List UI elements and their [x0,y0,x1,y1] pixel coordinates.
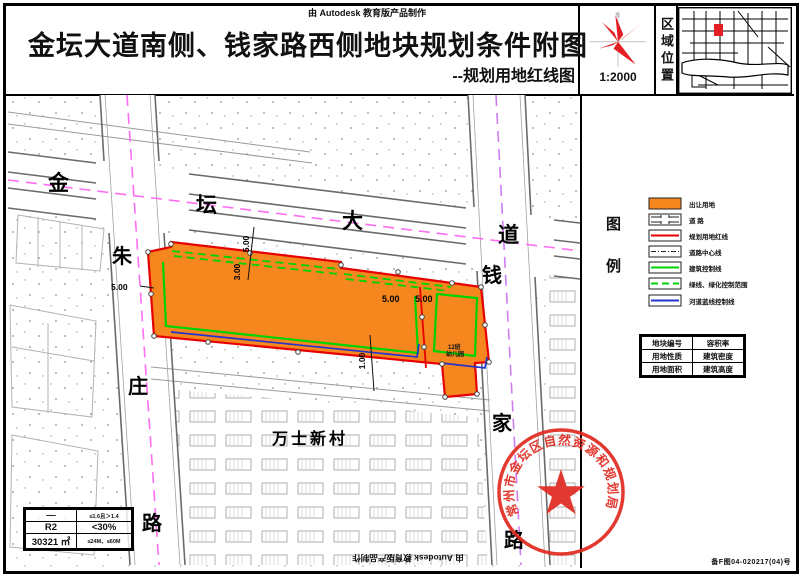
green-dash-swatch [648,277,682,290]
legend-label: 绿线、绿化控制范围 [689,279,748,289]
road-symbol-swatch [648,213,682,226]
param-cell: 建筑高度 [693,363,744,376]
road-char: 坛 [196,194,217,217]
legend-item-blue-line: 河道蓝线控制线 [648,294,735,307]
orange-fill-swatch [648,197,682,210]
legend-title-top: 图 [606,213,621,234]
made-by-text-bottom: 由 Autodesk 教育版产品制作 [333,552,483,564]
legend-label: 道 路 [689,215,704,225]
legend-label: 建筑控制线 [689,263,722,273]
page-subtitle: --规划用地红线图 [250,62,575,86]
village-label: 万士新村 [271,429,348,448]
param-table: 地块编号 容积率 用地性质 建筑密度 用地面积 建筑高度 [639,334,746,378]
dim-left: 5.00 [111,282,128,292]
legend-item-centerline: 道路中心线 [648,245,722,258]
value-cell: — [26,510,77,522]
road-char: 金 [47,171,70,195]
legend-item-red-line: 规划用地红线 [648,229,728,242]
legend-item-parcel: 出让用地 [648,197,715,210]
site-note-line1: 12班 [448,343,461,351]
param-cell: 用地面积 [642,363,693,376]
road-char: 道 [498,223,519,247]
dim-top-b: 3.00 [232,263,242,280]
plan-sheet: { "header": { "made_by": "由 Autodesk 教育版… [0,0,800,575]
road-char: 朱 [112,245,133,268]
page-title: 金坛大道南侧、钱家路西侧地块规划条件附图 [28,24,573,63]
road-char: 路 [142,511,163,535]
center-line-swatch [648,245,682,258]
site-note-line2: 幼儿园 [446,350,464,358]
legend-item-road: 道 路 [648,213,704,226]
dim-right-a: 5.00 [382,294,400,304]
legend-label: 河道蓝线控制线 [689,296,735,306]
red-line-swatch [648,229,682,242]
value-table: — ≤1.6且＞1.4 R2 <30% 30321 ㎡ ≤24M、≤60M [23,507,134,551]
made-by-text: 由 Autodesk 教育版产品制作 [262,6,472,19]
param-cell: 建筑密度 [693,350,744,363]
legend-label: 出让用地 [689,199,715,209]
legend-item-green-dash: 绿线、绿化控制范围 [648,277,748,290]
param-cell: 容积率 [693,337,744,350]
scale-label: 1:2000 [585,70,651,84]
value-cell: R2 [26,522,77,534]
param-cell: 用地性质 [642,350,693,363]
value-cell: <30% [77,522,132,534]
north-arrow-blades [599,15,640,65]
north-arrow-icon: N [586,8,650,70]
blue-line-swatch [648,294,682,307]
value-cell: ≤24M、≤60M [77,534,132,549]
legend-item-green-line: 建筑控制线 [648,261,722,274]
dim-right-b: 5.00 [415,294,433,304]
official-stamp: 常州市金坛区自然资源和规划局 [481,412,641,572]
param-cell: 地块编号 [642,337,693,350]
region-map-site-marker [714,24,723,36]
road-char: 庄 [128,374,148,398]
drawing-number: 备F图04-020217(04)号 [711,557,791,567]
value-cell: ≤1.6且＞1.4 [77,510,132,522]
green-line-swatch [648,261,682,274]
legend-label: 规划用地红线 [689,231,728,241]
dim-top-a: 5.00 [241,235,251,252]
legend-label: 道路中心线 [689,247,722,257]
region-location-label: 区域位置 [656,16,676,86]
dim-bottom: 1.00 [357,352,367,369]
value-cell: 30321 ㎡ [26,534,77,549]
stamp-star-icon [537,469,585,514]
legend-title-bottom: 例 [606,255,621,276]
road-char: 大 [342,210,363,233]
road-char: 钱 [482,263,502,287]
region-map [678,7,792,94]
